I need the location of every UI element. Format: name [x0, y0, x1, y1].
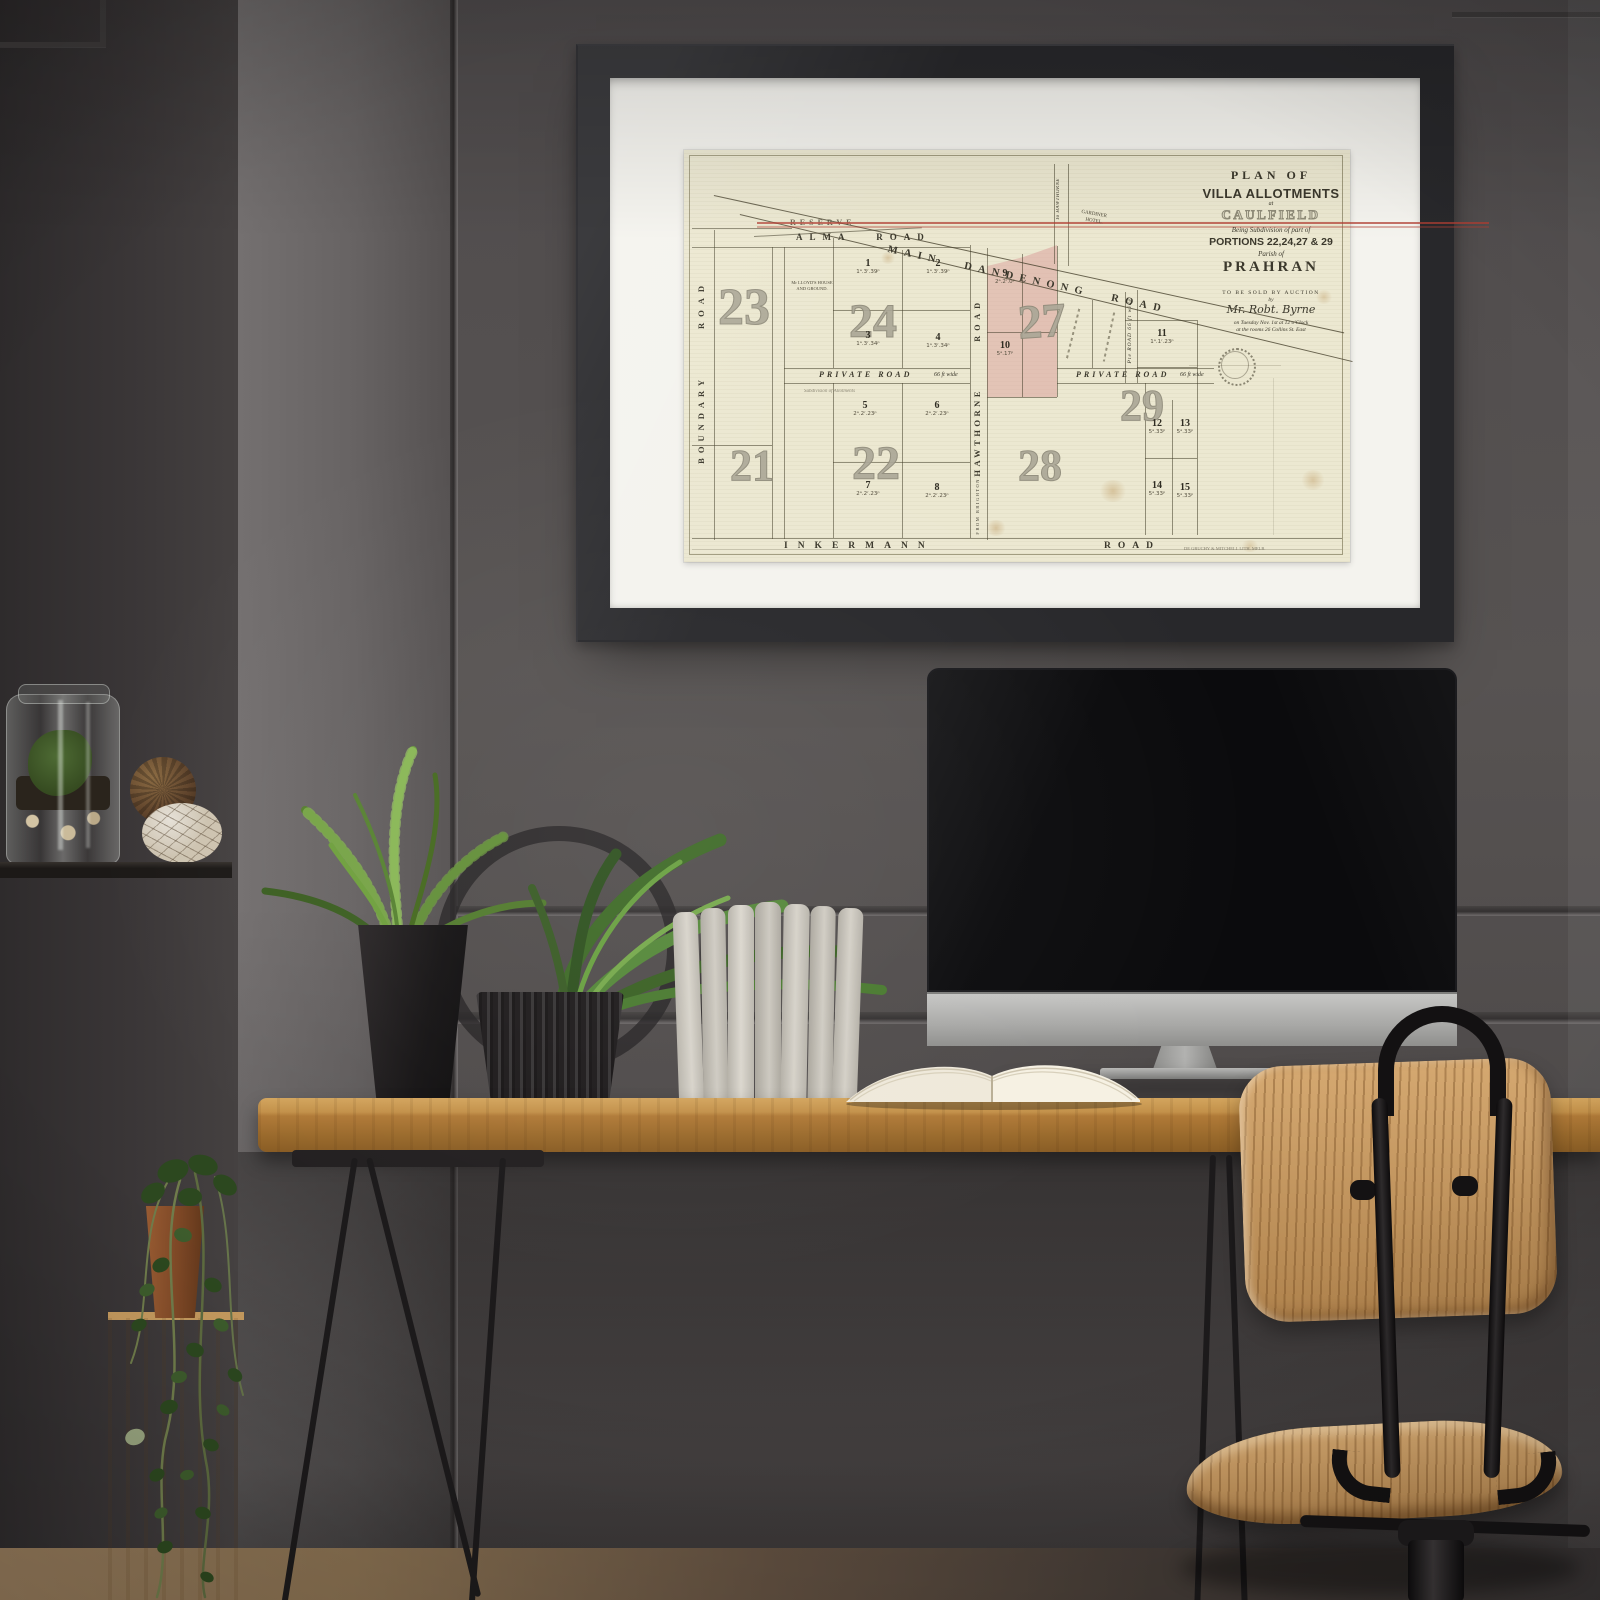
title-parish-of: Parish of	[1196, 250, 1346, 258]
handwritten-annotation	[1066, 309, 1081, 360]
wall-trim-topleft-horizontal	[0, 42, 106, 47]
private-road-left-label: PRIVATE ROAD	[819, 370, 912, 379]
title-caulfield: CAULFIELD	[1196, 207, 1346, 223]
chair-column	[1408, 1540, 1464, 1600]
subdivision-note: Subdivision of Allotments	[804, 389, 855, 394]
lithographer-credit: DE GRUCHY & MITCHELL LITH. MELB.	[1184, 546, 1266, 551]
hanging-vine-plant	[95, 1145, 295, 1600]
section-23: 23	[718, 282, 770, 334]
hawthorne-road-word-label: ROAD	[973, 298, 982, 342]
open-book	[842, 1048, 1146, 1110]
desk-leg-bracket	[292, 1150, 544, 1167]
title-villa-allotments: VILLA ALLOTMENTS	[1196, 186, 1346, 201]
map-content: MAIN DANDENONG ROAD RESERVE ALMA ROAD RO…	[684, 150, 1350, 562]
lot-5: 52ᵃ.2ʳ.23ᵖ	[845, 400, 885, 417]
computer-chin	[927, 992, 1457, 1046]
lloyds-house-label: Mr LLOYD'S HOUSE	[788, 280, 836, 285]
hawthorne-road-label: HAWTHORNE	[972, 388, 982, 477]
lot-8: 82ᵃ.2ʳ.23ᵖ	[917, 482, 957, 499]
lot-7: 72ᵃ.2ʳ.23ᵖ	[848, 480, 888, 497]
private-road-left-width: 66 ft wide	[934, 372, 958, 378]
section-21: 21	[730, 444, 774, 488]
boundary-road-label: BOUNDARY	[696, 375, 706, 464]
private-road-right-label: PRIVATE ROAD	[1076, 370, 1169, 379]
title-portions: PORTIONS 22,24,27 & 29	[1196, 236, 1346, 248]
title-auction: TO BE SOLD BY AUCTION	[1196, 290, 1346, 296]
lot-1: 11ᵃ.3ʳ.39ᵖ	[848, 258, 888, 275]
decor-ball-crackle	[142, 803, 222, 863]
book	[700, 908, 729, 1112]
chair-bolt	[1452, 1176, 1478, 1196]
lot-10: 105ᵃ.17ᵖ	[986, 340, 1024, 357]
lot-6: 62ᵃ.2ʳ.23ᵖ	[917, 400, 957, 417]
book	[755, 902, 781, 1112]
lot-14: 145ᵃ.33ᵖ	[1142, 480, 1172, 497]
handwritten-annotation	[1103, 312, 1115, 361]
wall-shelf	[0, 862, 232, 878]
to-hawthorne-label: To HAWTHORNE	[1056, 178, 1061, 220]
inkermann-road-label: INKERMANN	[784, 541, 935, 551]
section-27: 27	[1016, 296, 1067, 347]
lot-3: 31ᵃ.3ʳ.34ᵖ	[848, 330, 888, 347]
title-plan-of: PLAN OF	[1196, 168, 1346, 183]
lot-12: 125ᵃ.33ᵖ	[1142, 418, 1172, 435]
alma-road-label: ALMA ROAD	[796, 232, 931, 242]
lot-15: 155ᵃ.33ᵖ	[1170, 482, 1200, 499]
title-date: on Tuesday Nov. 1st at 12 o'Clock	[1196, 320, 1346, 326]
book-stack	[676, 902, 862, 1112]
lot-2: 21ᵃ.3ʳ.39ᵖ	[918, 258, 958, 275]
lloyds-ground-label: AND GROUND.	[788, 286, 836, 291]
chair-shadow	[1180, 1540, 1580, 1596]
private-road-right-width: 66 ft wide	[1180, 372, 1204, 378]
title-prahran: PRAHRAN	[1196, 259, 1346, 276]
chair-bolt	[1350, 1180, 1376, 1200]
lot-9: 92ᵃ.2ʳ.0ᵖ	[986, 268, 1024, 285]
wall-trim-topleft-vertical	[100, 0, 106, 42]
boundary-road-word-label: ROAD	[696, 280, 706, 329]
jar-neck	[18, 684, 110, 704]
lot-13: 135ᵃ.33ᵖ	[1170, 418, 1200, 435]
from-brighton-label: FROM BRIGHTON	[975, 478, 980, 535]
terrarium-pebbles	[12, 798, 114, 856]
book	[780, 904, 810, 1112]
jar-reflection	[58, 700, 63, 850]
pte-road-label: Pte ROAD 66 ft wide	[1127, 298, 1133, 363]
book	[728, 905, 754, 1112]
section-28: 28	[1018, 444, 1062, 488]
title-rooms: at the rooms 26 Collins St. East	[1196, 327, 1346, 333]
inkermann-road-word-label: ROAD	[1104, 541, 1160, 551]
lot-11: 111ᵃ.1ʳ.23ᵖ	[1140, 328, 1184, 345]
book	[673, 912, 705, 1113]
reserve-label: RESERVE	[790, 218, 1456, 227]
room-scene: MAIN DANDENONG ROAD RESERVE ALMA ROAD RO…	[0, 0, 1600, 1600]
map-title-block: PLAN OF VILLA ALLOTMENTS at CAULFIELD Be…	[1196, 168, 1346, 333]
lot-4: 41ᵃ.3ʳ.34ᵖ	[918, 332, 958, 349]
jar-reflection	[86, 702, 90, 848]
plant-pot-ribbed	[476, 992, 624, 1112]
title-auctioneer: Mr. Robt. Byrne	[1196, 303, 1346, 316]
computer-screen	[927, 668, 1457, 992]
title-being: Being Subdivision of part of	[1196, 226, 1346, 234]
